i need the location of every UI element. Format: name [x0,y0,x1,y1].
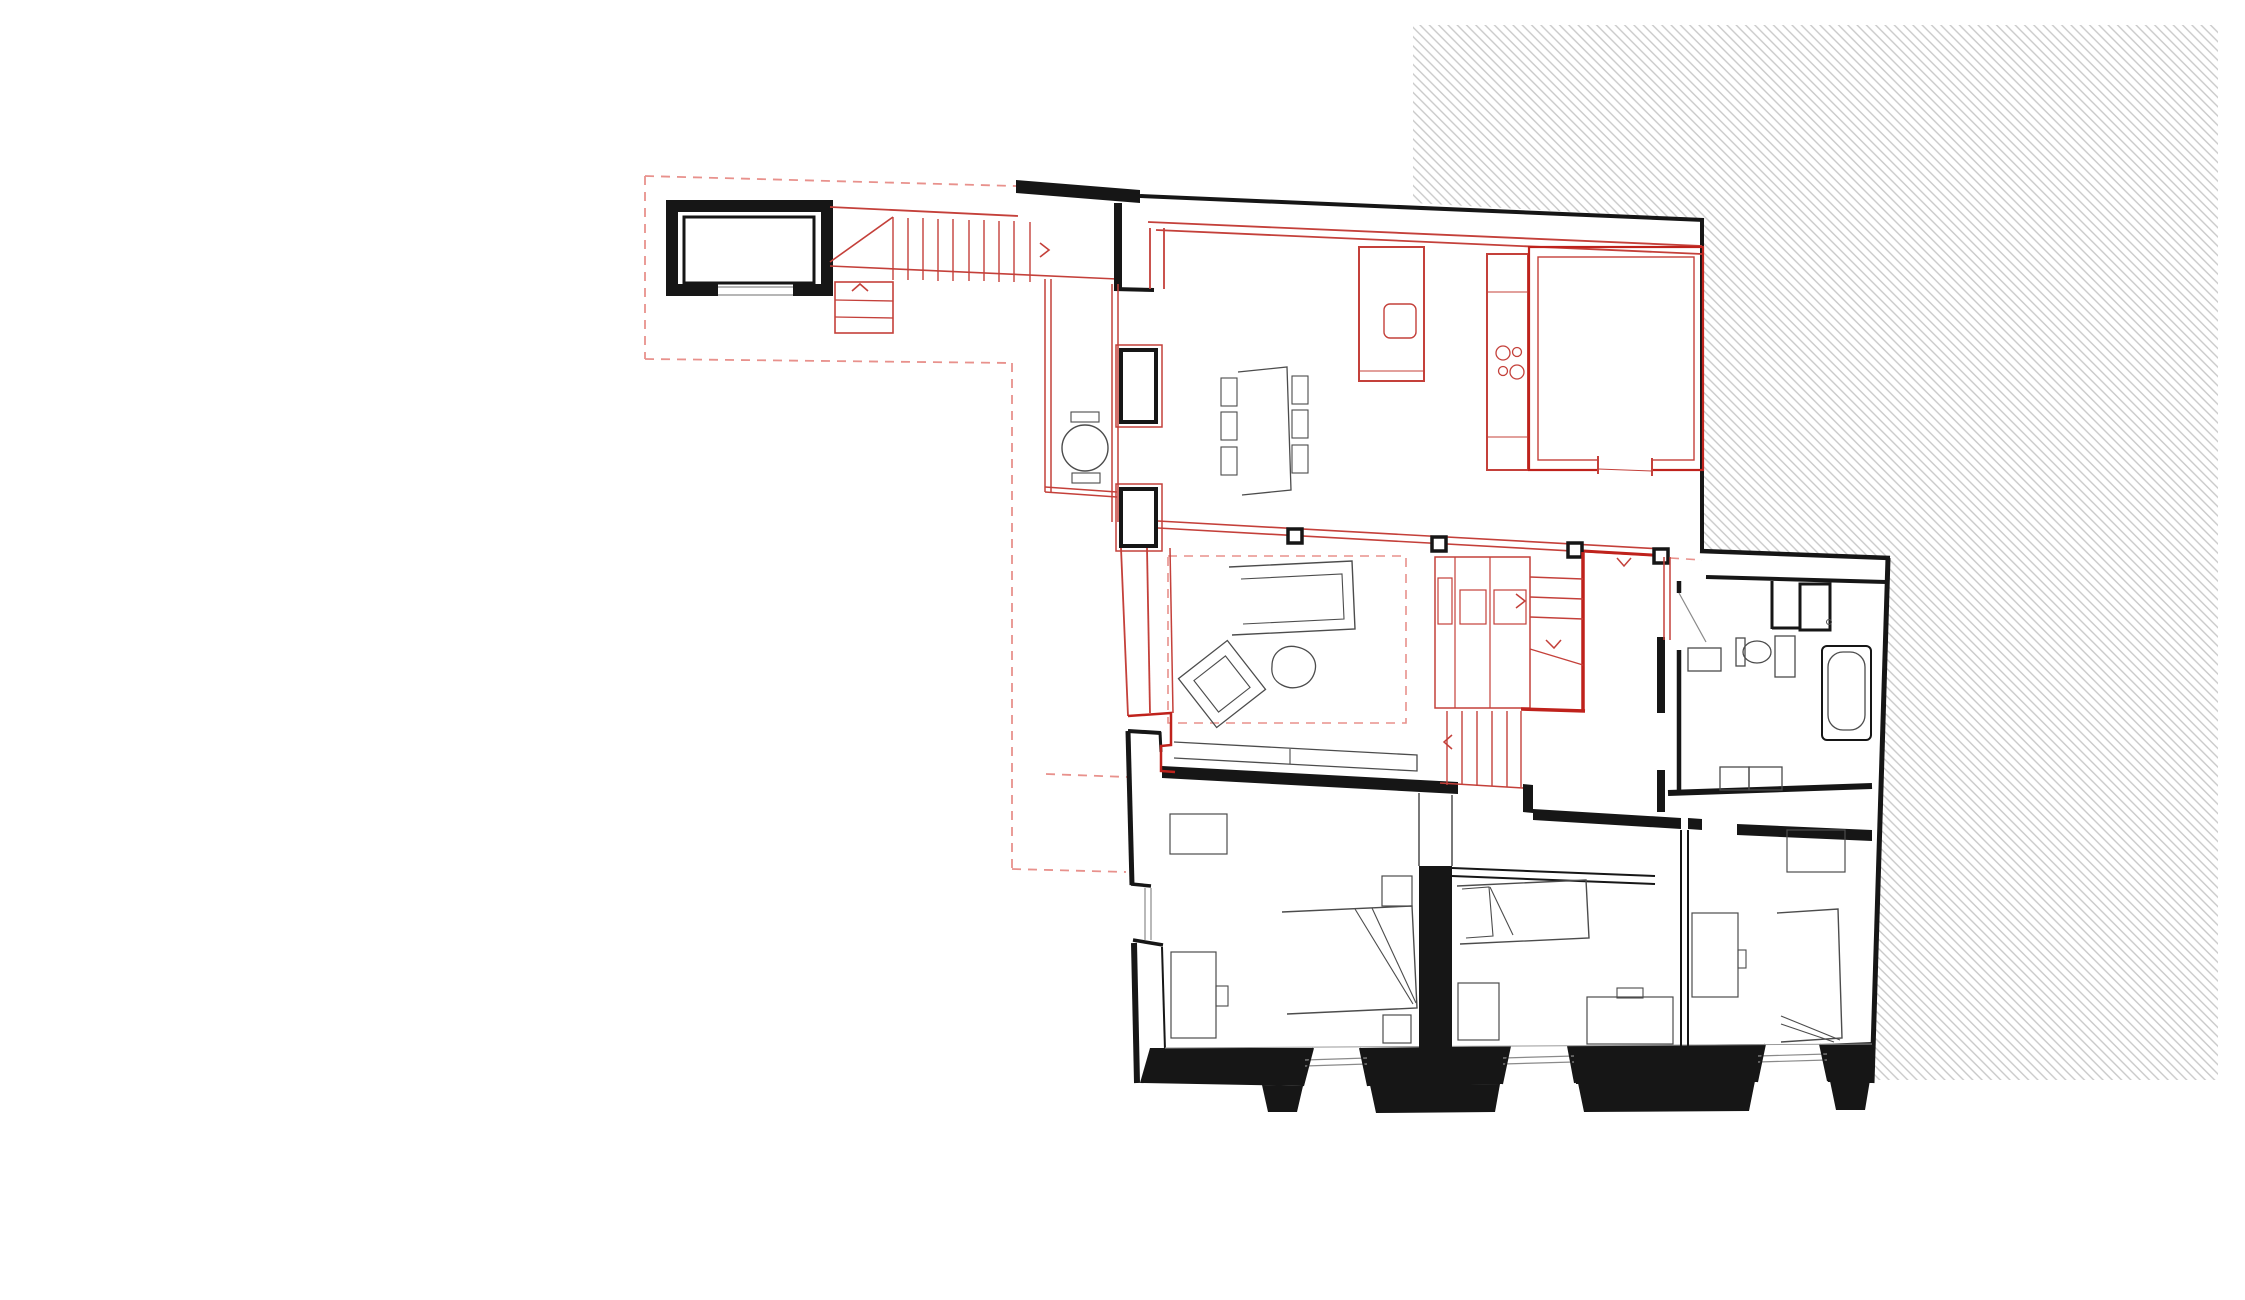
boundary-dash-top [645,176,1016,186]
pantry-door-gap [1598,452,1652,476]
coffee-table-blob [1272,646,1316,687]
corridor-wall-bottom-1 [1045,487,1117,492]
stair2-arrow-1 [1516,594,1525,608]
bath-washbasin-column [1775,636,1795,677]
dining-chair-r3 [1292,445,1308,473]
window3-glazing-1 [1758,1054,1827,1056]
bedroom3-bed-fold-1 [1781,1016,1840,1040]
shower-box [1800,584,1830,630]
west-red-wall-2 [1147,548,1150,713]
south-pier-0 [1262,1085,1303,1112]
window2-glazing-1 [1503,1056,1574,1058]
west-wall-low [1134,943,1137,1083]
south-pier-3 [1830,1080,1870,1110]
west-window-step-top [1131,884,1151,886]
kitchen-island-sink [1384,304,1416,338]
hall-east-wall-seg-2 [1657,770,1665,812]
sideboard [1174,742,1417,771]
armchair-inner [1194,656,1250,712]
dining-chair-l2 [1221,412,1237,440]
stair1-up-arrow [852,284,868,291]
bedroom2-nightstand [1458,983,1499,1040]
corridor-wall-bottom-2 [1045,492,1117,497]
west-pier-a [1121,350,1156,422]
stair1-direction-arrow [1040,243,1049,257]
hall-east-wall-seg-1 [1657,637,1665,713]
bedroom2-partition-2 [1452,876,1655,884]
annex-top-inner-wall [1706,577,1886,582]
stove-burner-2 [1513,348,1522,357]
armchair-outer [1178,640,1265,727]
stair2-tread-3 [1530,617,1583,619]
bedroom3-desk-knob [1738,950,1746,968]
column-post-1 [1288,529,1302,543]
west-window-step-bottom [1133,940,1163,945]
bedroom1-dresser-knob [1216,986,1228,1006]
bedroom1-dresser-left [1171,952,1216,1038]
stair1-lower-steps [835,282,893,333]
stove-burner-1 [1496,346,1510,360]
bedroom3-door-stub [1688,818,1702,830]
west-wall-low-inner [1162,947,1165,1050]
floor-plan-canvas [0,0,2245,1300]
bedroom1-nightstand-1 [1382,876,1412,906]
dining-chair-l1 [1221,378,1237,406]
entrance-inner-face [684,217,814,283]
round-table-chair-bottom [1072,473,1100,483]
bedroom3-bed [1777,909,1842,1042]
bedroom3-north-wall [1737,824,1872,841]
column-post-3 [1568,543,1582,557]
west-pier-b [1121,489,1156,546]
boundary-dash-bottom [1012,869,1126,872]
stair2-arrow-2 [1546,640,1561,648]
landing-foot-wall [1114,289,1154,290]
stove-burner-4 [1510,365,1524,379]
bath-sink-cabinet [1688,648,1721,671]
boundary-dash-stub [1046,774,1127,777]
dining-chair-r1 [1292,376,1308,404]
bath-door-leaf [1679,593,1706,642]
west-red-wall-1 [1121,548,1128,716]
stair1-wedge [830,217,893,262]
adjacent-mass-hatch [1413,25,2218,1080]
bedroom-divider-1 [1419,866,1452,1049]
west-wall-mid [1128,731,1132,885]
south-wall-inner-line [1165,1044,1872,1048]
bedroom1-dresser-top [1170,814,1227,854]
pantry-room-inner [1538,257,1694,460]
window1-glazing-2 [1305,1064,1367,1066]
stove-burner-3 [1499,367,1508,376]
stair1-side-top [830,207,1018,216]
toilet-bowl [1743,641,1771,663]
round-table-chair-top [1071,412,1099,422]
stair1-side-bottom [830,266,1117,279]
wardrobe-box-3 [1494,590,1526,624]
stair2-tread-2 [1530,597,1583,599]
window1-glazing-1 [1305,1058,1367,1060]
bedroom1-bed-fold-1 [1355,909,1413,1004]
bedroom1-bed-fold-2 [1372,908,1416,1003]
wardrobe-block [1435,557,1530,708]
column-post-2 [1432,537,1446,551]
laundry-box-1 [1720,767,1749,790]
landing-stem-wall [1114,203,1122,291]
pantry-room-outer [1529,247,1703,470]
dining-table [1238,367,1291,495]
window2-glazing-2 [1503,1062,1574,1064]
wardrobe-box-2 [1460,590,1486,624]
bedroom2-partition-1 [1452,868,1655,876]
hall-direction-arrow [1617,558,1631,566]
column-post-4 [1654,549,1668,563]
window3-glazing-2 [1758,1060,1827,1062]
kitchen-island [1359,247,1424,381]
south-wall-seg-3 [1568,1044,1765,1084]
boundary-dash-mid-h [645,359,1012,363]
bedroom2-pillow [1462,887,1493,938]
sw-step-wall-h [1128,731,1161,733]
plan-drawing-layer [645,25,2218,1113]
sofa-inner [1241,574,1344,624]
west-red-wall-3 [1170,548,1173,713]
living-kitchen-wall-1 [1158,521,1663,549]
bedroom3-desk [1692,913,1738,997]
bedroom1-nightstand-2 [1383,1015,1411,1043]
stair2-break-line [1530,649,1583,665]
south-wall-seg-2 [1360,1046,1510,1086]
living-zone-dash-rect [1168,556,1406,723]
south-wall-seg-1 [1140,1048,1313,1086]
stair2-wall-bottom-bold [1521,709,1585,711]
south-pier-1 [1370,1084,1500,1113]
top-wall-thick [1016,180,1140,203]
wardrobe-box-1 [1438,578,1452,624]
bedroom2-desk [1587,997,1673,1044]
stair3-direction-arrow [1444,735,1452,749]
boundary-dash-right-stub [1670,558,1702,560]
kitchen-counter [1487,254,1528,470]
bedrooms-north-wall-jog [1523,784,1533,813]
floor-plan-svg [0,0,2245,1300]
bedroom1-bed [1282,906,1417,1014]
stair1-lower-step-line-1 [835,300,893,301]
bedroom2-bed [1457,880,1589,944]
stair1-lower-step-line-2 [835,317,893,318]
bathtub-inner [1828,652,1865,730]
round-table [1062,425,1108,471]
dining-chair-l3 [1221,447,1237,475]
bedroom2-bed-fold [1490,887,1513,935]
south-pier-2 [1578,1081,1755,1112]
dining-chair-r2 [1292,410,1308,438]
stair2-tread-1 [1530,577,1583,579]
